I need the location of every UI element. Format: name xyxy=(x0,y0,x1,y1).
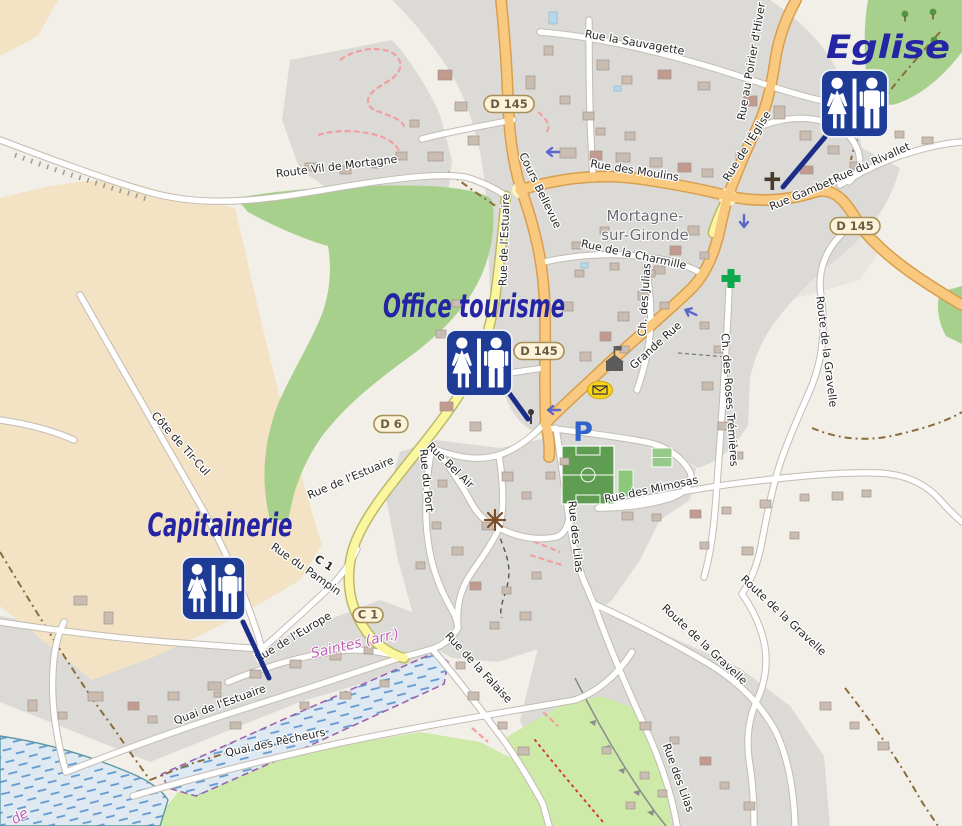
road-ref-text: D 145 xyxy=(490,97,528,111)
road-ref-text: D 145 xyxy=(836,219,874,233)
place-label-line1: Mortagne- xyxy=(606,207,683,225)
road-ref-c1: C 1 xyxy=(353,608,383,623)
annotation-capitainerie: Capitainerie xyxy=(148,506,293,544)
parking-icon: P xyxy=(573,417,593,448)
road-ref-text: D 6 xyxy=(380,417,402,431)
annotation-office-tourisme: Office tourisme xyxy=(383,287,565,325)
road-ref-d145-mid: D 145 xyxy=(514,343,564,360)
tennis-court xyxy=(652,448,672,467)
road-ref-text: D 145 xyxy=(520,344,558,358)
place-label-line2: sur-Gironde xyxy=(601,226,689,244)
road-ref-d145-top: D 145 xyxy=(484,96,534,113)
windmill-icon xyxy=(485,510,505,530)
toilets-icon-office-tourisme xyxy=(446,330,512,396)
toilets-icon-eglise xyxy=(821,70,888,137)
road-ref-text: C 1 xyxy=(358,608,378,622)
map-canvas: Route Vil de Mortagne Rue la Sauvagette … xyxy=(0,0,962,826)
toilets-icon-capitainerie xyxy=(182,557,245,620)
map-svg: Route Vil de Mortagne Rue la Sauvagette … xyxy=(0,0,962,826)
road-ref-d6: D 6 xyxy=(374,416,408,433)
post-office-icon xyxy=(588,381,613,399)
annotation-eglise: Eglise xyxy=(826,28,950,66)
road-ref-d145-east: D 145 xyxy=(830,218,880,235)
